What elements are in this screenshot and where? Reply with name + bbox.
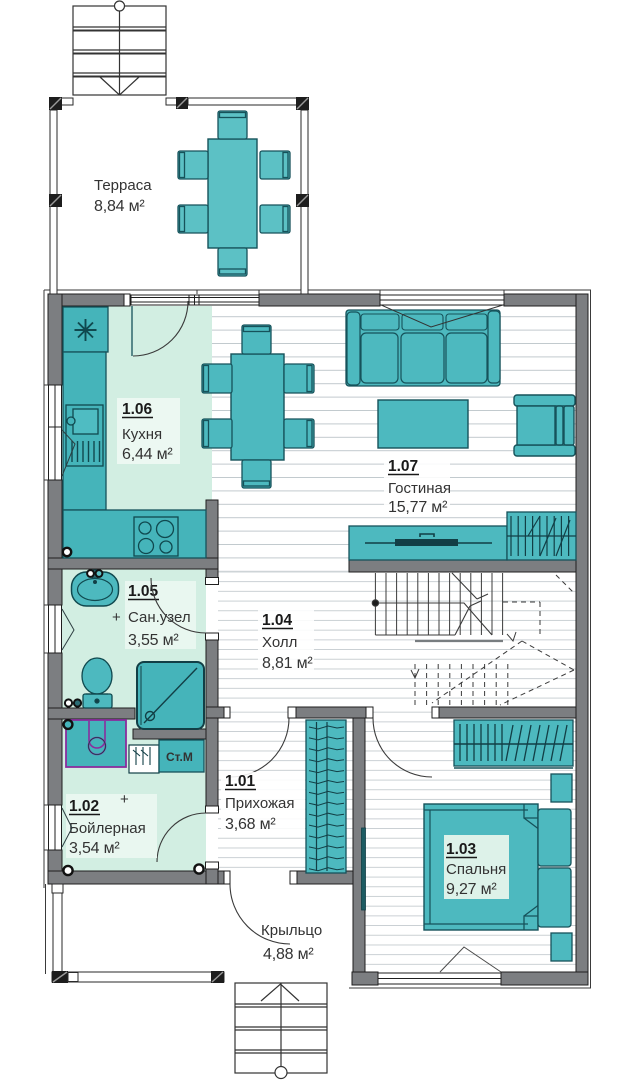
svg-text:1.03: 1.03 — [446, 841, 477, 858]
svg-text:+: + — [120, 791, 129, 808]
svg-text:8,81 м²: 8,81 м² — [262, 655, 313, 672]
svg-text:Терраса: Терраса — [94, 177, 152, 194]
svg-text:Гостиная: Гостиная — [388, 480, 451, 497]
svg-text:8,84 м²: 8,84 м² — [94, 198, 145, 215]
svg-text:+: + — [112, 609, 121, 626]
svg-text:1.06: 1.06 — [122, 401, 153, 418]
svg-text:1.02: 1.02 — [69, 798, 99, 815]
svg-text:Бойлерная: Бойлерная — [69, 820, 146, 837]
svg-text:Прихожая: Прихожая — [225, 795, 295, 812]
svg-text:Холл: Холл — [262, 634, 297, 651]
svg-text:Сан.узел: Сан.узел — [128, 609, 191, 626]
svg-text:Спальня: Спальня — [446, 861, 506, 878]
svg-text:4,88 м²: 4,88 м² — [263, 946, 314, 963]
svg-text:1.07: 1.07 — [388, 458, 418, 475]
svg-text:Ст.М: Ст.М — [166, 750, 193, 764]
svg-text:3,54 м²: 3,54 м² — [69, 840, 120, 857]
svg-text:15,77 м²: 15,77 м² — [388, 499, 448, 516]
svg-text:1.04: 1.04 — [262, 612, 293, 629]
svg-text:Крыльцо: Крыльцо — [261, 922, 322, 939]
svg-text:9,27 м²: 9,27 м² — [446, 881, 497, 898]
svg-text:3,68 м²: 3,68 м² — [225, 816, 276, 833]
svg-text:Кухня: Кухня — [122, 426, 162, 443]
svg-text:3,55 м²: 3,55 м² — [128, 632, 179, 649]
svg-text:1.01: 1.01 — [225, 773, 256, 790]
svg-text:6,44 м²: 6,44 м² — [122, 446, 173, 463]
